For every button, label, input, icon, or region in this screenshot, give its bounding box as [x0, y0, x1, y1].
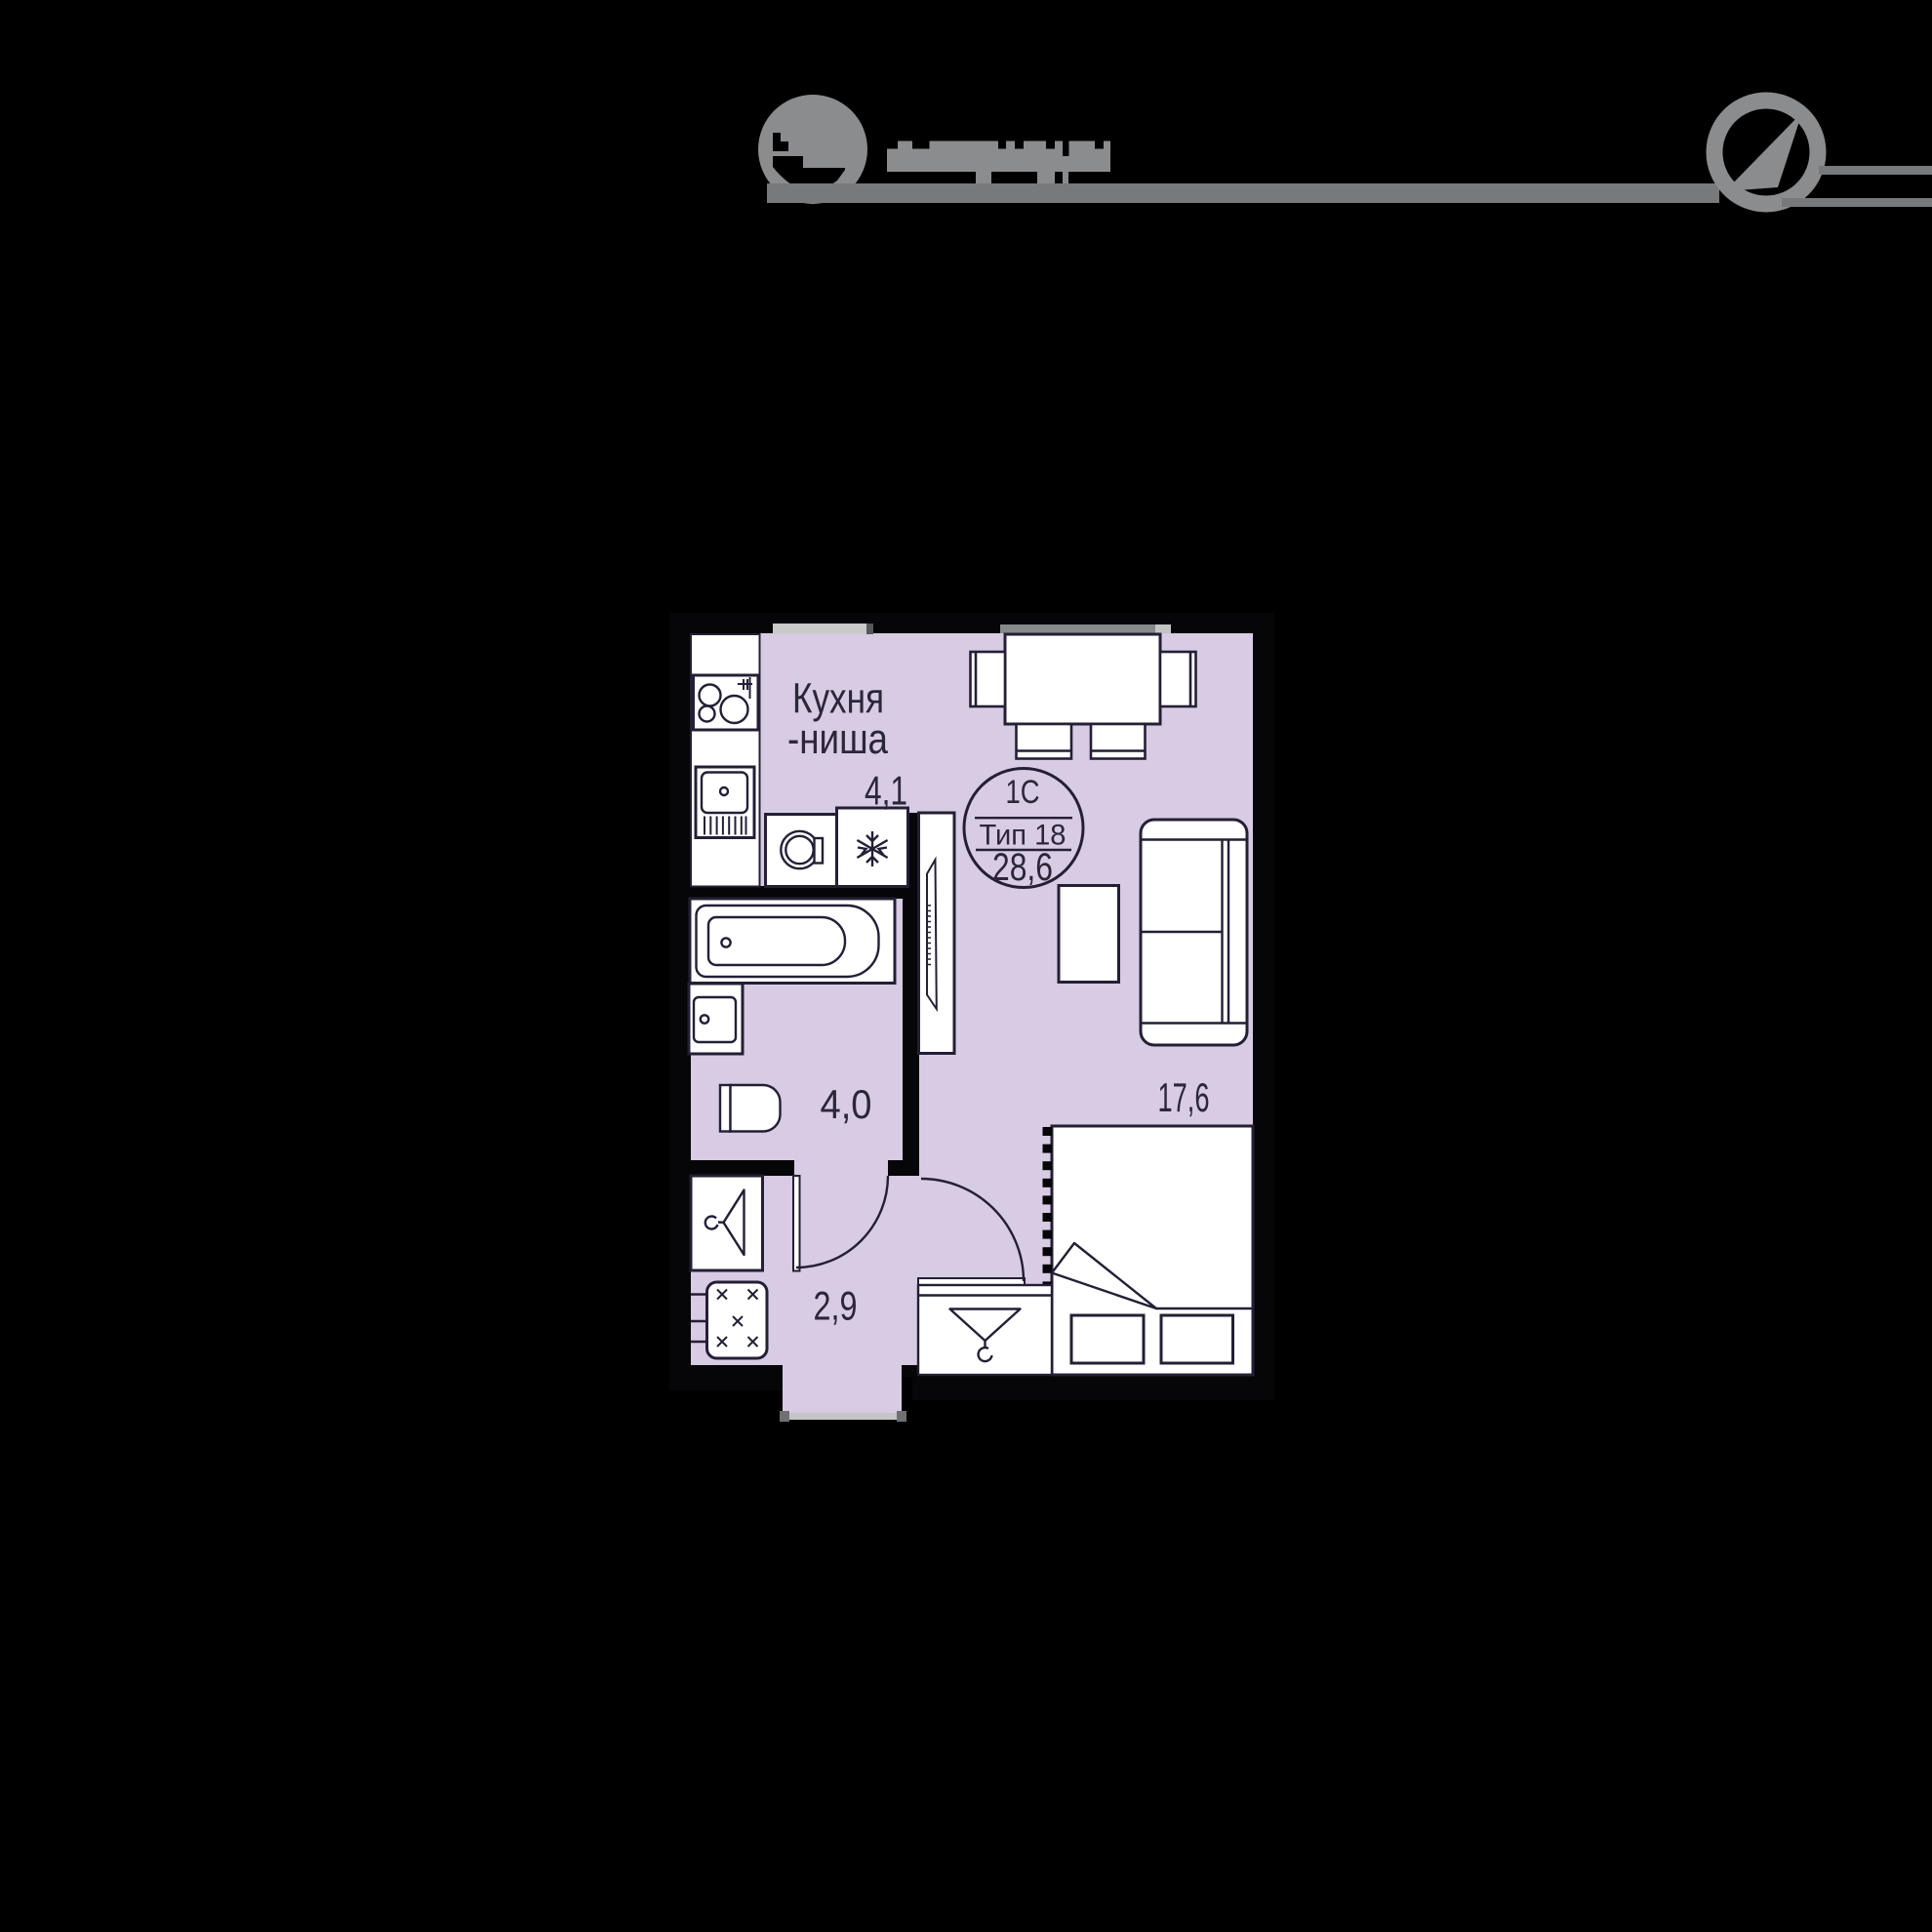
svg-text:1С: 1С	[1006, 774, 1040, 811]
svg-text:-ниша: -ниша	[787, 715, 888, 763]
svg-text:4,0: 4,0	[821, 1081, 872, 1127]
svg-text:4,1: 4,1	[865, 768, 907, 814]
svg-text:2,9: 2,9	[814, 1283, 858, 1329]
svg-text:28,6: 28,6	[992, 846, 1053, 889]
svg-text:17,6: 17,6	[1158, 1074, 1210, 1120]
